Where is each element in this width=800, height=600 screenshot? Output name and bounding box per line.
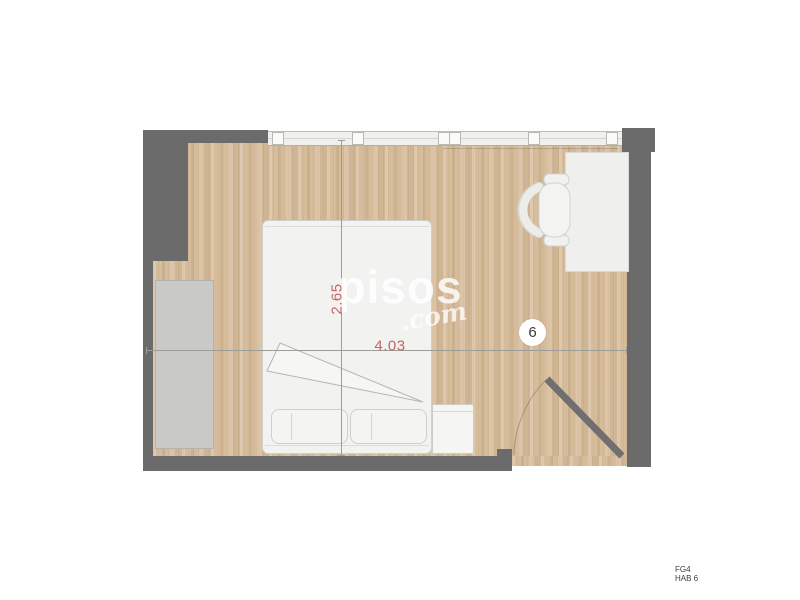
pillow-left	[271, 409, 348, 444]
dimension-label-vertical: 2.65	[329, 283, 346, 314]
wall-right	[627, 146, 651, 467]
pillow-right	[350, 409, 427, 444]
desk	[565, 152, 629, 272]
door-jamb	[497, 449, 512, 471]
wall-bottom	[143, 456, 512, 471]
floorplan: pisos .com 2.65 4.03 6 FG4 HAB 6	[0, 0, 800, 600]
plan-reference: FG4 HAB 6	[675, 565, 698, 583]
plan-reference-line2: HAB 6	[675, 574, 698, 583]
window-mullion	[528, 132, 540, 145]
wall-top-right-corner	[622, 128, 655, 152]
dimension-label-horizontal: 4.03	[374, 338, 405, 355]
window-mullion	[272, 132, 284, 145]
window-band	[268, 131, 622, 146]
nightstand-drawer-line	[433, 411, 473, 412]
window-mullion	[606, 132, 618, 145]
window-mullion	[449, 132, 461, 145]
bed-head-line	[265, 226, 429, 227]
pillow-fold-line	[371, 413, 372, 440]
door-opening-floor	[512, 456, 627, 466]
nightstand	[432, 404, 474, 454]
room-number-badge: 6	[519, 319, 546, 346]
pillow-fold-line	[291, 413, 292, 440]
bed-foot-line	[265, 445, 429, 446]
window-mullion	[352, 132, 364, 145]
wardrobe	[155, 280, 214, 449]
wall-left	[143, 130, 153, 471]
plan-reference-line1: FG4	[675, 565, 698, 574]
